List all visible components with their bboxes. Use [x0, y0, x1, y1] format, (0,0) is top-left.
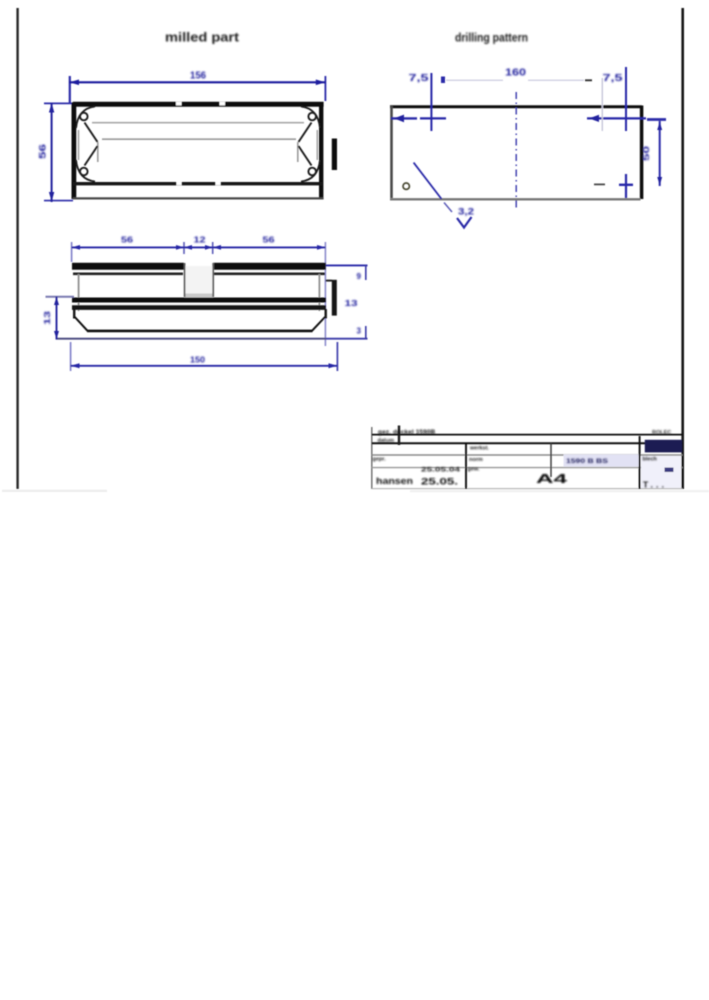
- svg-text:A4: A4: [536, 471, 568, 486]
- svg-text:56: 56: [121, 235, 133, 245]
- svg-text:3,2: 3,2: [458, 207, 474, 217]
- svg-text:werkst.: werkst.: [469, 446, 489, 452]
- svg-text:blech: blech: [643, 457, 658, 463]
- svg-text:gez. deckel 1590B: gez. deckel 1590B: [378, 429, 436, 436]
- svg-text:T...: T...: [643, 480, 667, 490]
- svg-text:7,5: 7,5: [409, 72, 429, 84]
- svg-text:ROLEC: ROLEC: [652, 430, 671, 436]
- svg-text:datum: datum: [378, 438, 395, 444]
- svg-text:gew.: gew.: [468, 467, 480, 473]
- svg-text:13: 13: [345, 299, 359, 308]
- svg-text:12: 12: [194, 235, 206, 245]
- svg-text:150: 150: [190, 355, 205, 365]
- svg-text:56: 56: [263, 235, 275, 245]
- svg-text:norm: norm: [469, 457, 483, 463]
- svg-text:7,5: 7,5: [603, 72, 623, 84]
- svg-text:13: 13: [42, 311, 52, 325]
- svg-text:9: 9: [357, 272, 362, 281]
- svg-text:gepr.: gepr.: [373, 457, 387, 463]
- svg-text:milled part: milled part: [165, 30, 240, 45]
- svg-text:1590 B BS: 1590 B BS: [566, 459, 608, 465]
- svg-text:56: 56: [38, 144, 48, 159]
- svg-text:25.05.04: 25.05.04: [421, 467, 461, 474]
- svg-text:25.05.: 25.05.: [421, 477, 458, 488]
- svg-text:hansen: hansen: [376, 476, 413, 487]
- svg-text:160: 160: [505, 68, 527, 79]
- svg-text:3: 3: [357, 327, 362, 336]
- svg-text:drilling pattern: drilling pattern: [455, 31, 528, 45]
- svg-text:50: 50: [641, 146, 651, 161]
- svg-text:156: 156: [190, 71, 206, 82]
